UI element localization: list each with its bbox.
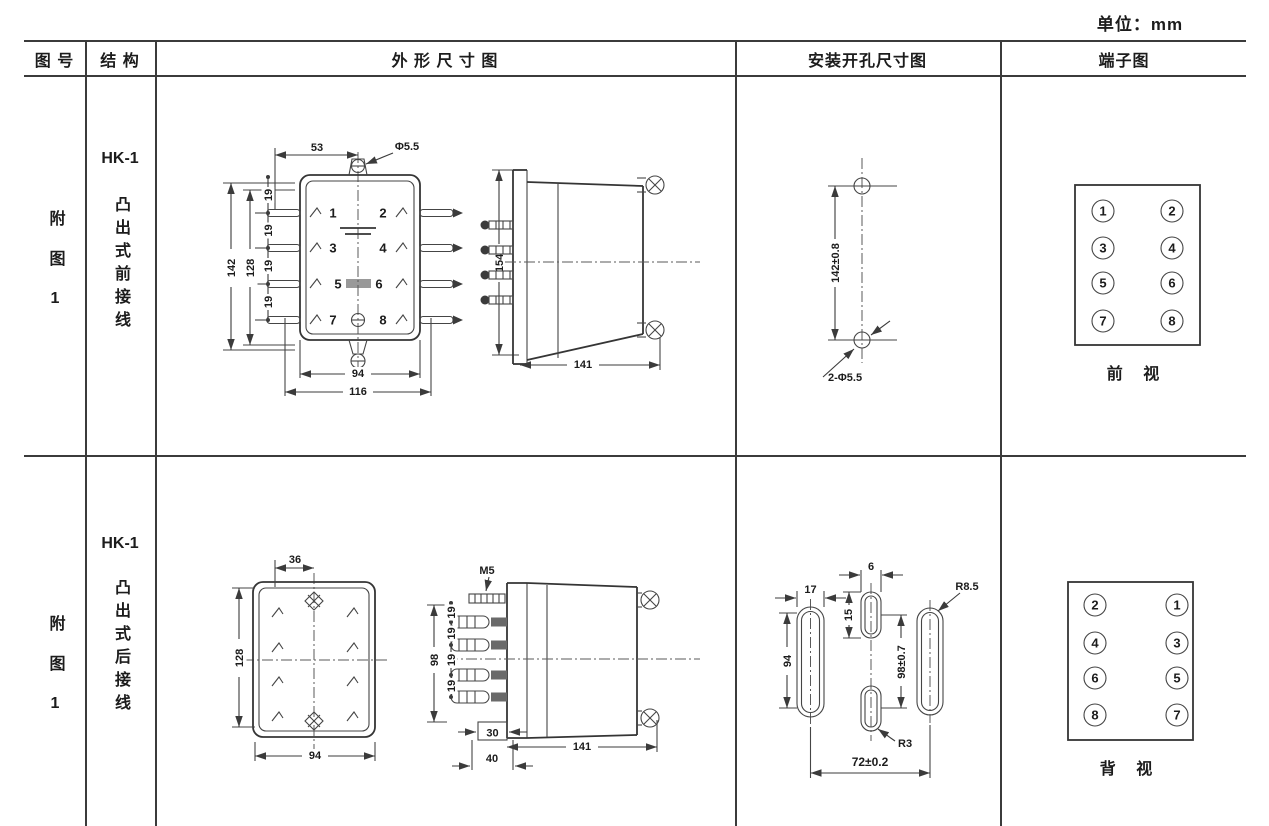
row2-mounting-drawing: 17 94 6 15 98±0.7 R8 [735,455,1000,826]
dim-label: 19 [263,296,275,308]
dim-label: 36 [289,554,301,566]
view-label: 前 视 [1107,364,1167,383]
terminal-number: 6 [1091,671,1098,686]
terminal-number: 1 [1099,204,1106,219]
terminal-number: 6 [1168,276,1175,291]
row2-structure-cell: HK-1 凸出式后接线 [87,455,153,826]
row2-outline-drawing: 36 128 94 M5 [155,455,735,826]
row2-model-label: HK-1 [101,535,138,553]
row2-front-view: 36 128 94 [232,554,388,762]
terminal-number: 6 [375,277,382,292]
row2-structure-label: 凸出式后接线 [108,579,132,717]
row2-terminal-drawing: 2 1 4 3 6 5 8 7 背 视 [1000,455,1269,826]
dim-label: 98 [429,654,441,666]
terminal-number: 8 [379,313,386,328]
header-terminal: 端子图 [1002,42,1246,75]
dim-label: 98±0.7 [896,645,908,679]
row2-mounting-cell: 17 94 6 15 98±0.7 R8 [735,455,1000,826]
row1-outline-cell: 1 2 3 4 5 6 7 8 53 Φ5.5 142 1 [155,78,735,455]
terminal-number: 1 [1173,598,1180,613]
dim-label: 19 [446,606,458,618]
terminal-number: 5 [1173,671,1180,686]
row1-front-view: 1 2 3 4 5 6 7 8 53 Φ5.5 142 1 [223,141,463,398]
terminal-number: 1 [329,206,336,221]
dim-label: 128 [245,259,257,277]
dim-label: 19 [263,224,275,236]
dim-label: M5 [479,565,494,577]
row1-terminal-cell: 1 2 3 4 5 6 7 8 前 视 [1000,78,1269,455]
row2-side-view: M5 98 [427,565,701,770]
dim-label: 128 [234,649,246,667]
dim-label: 19 [263,189,275,201]
dim-label: 72±0.2 [852,755,889,769]
terminal-number: 7 [329,313,336,328]
terminal-number: 7 [1099,314,1106,329]
dim-label: 141 [574,359,592,371]
dim-label: 30 [486,728,498,740]
view-label: 背 视 [1100,759,1160,778]
row1-figure-number: 附图1 [43,210,67,331]
row2-outline-cell: 36 128 94 M5 [155,455,735,826]
row1-mounting-drawing: 142±0.8 2-Φ5.5 [735,78,1000,455]
terminal-number: 3 [1099,241,1106,256]
row2-figure-cell: 附图1 [24,455,85,826]
terminal-number: 4 [1091,636,1099,651]
row1-figure-cell: 附图1 [24,78,85,455]
terminal-number: 5 [334,277,341,292]
terminal-number: 2 [1168,204,1175,219]
table-line-header-bottom [24,75,1246,77]
terminal-number: 8 [1168,314,1175,329]
terminal-number: 4 [1168,241,1176,256]
dim-label: 19 [263,260,275,272]
row1-terminal-drawing: 1 2 3 4 5 6 7 8 前 视 [1000,78,1269,455]
dim-label: 142±0.8 [830,243,842,283]
dim-label: 53 [311,142,323,154]
row1-structure-label: 凸出式前接线 [108,196,132,334]
terminal-number: 5 [1099,276,1106,291]
header-outline: 外 形 尺 寸 图 [157,42,733,75]
row1-outline-drawing: 1 2 3 4 5 6 7 8 53 Φ5.5 142 1 [155,78,735,455]
dim-label: 15 [843,609,855,621]
dim-label: 141 [573,741,591,753]
header-figure: 图 号 [24,42,85,75]
unit-label: 单位：mm [1060,10,1220,35]
dim-label: 2-Φ5.5 [828,372,862,384]
dim-label: 6 [868,561,874,573]
dim-label: 94 [782,654,794,667]
row1-structure-cell: HK-1 凸出式前接线 [87,78,153,455]
terminal-number: 8 [1091,708,1098,723]
dim-label: 19 [446,627,458,639]
dim-label: 40 [486,753,498,765]
header-mounting: 安装开孔尺寸图 [737,42,998,75]
dim-label: 19 [446,654,458,666]
header-structure: 结 构 [87,42,153,75]
dim-label: 154 [494,253,506,272]
terminal-number: 7 [1173,708,1180,723]
row1-mounting-cell: 142±0.8 2-Φ5.5 [735,78,1000,455]
spec-sheet-page: 单位：mm 图 号 结 构 外 形 尺 寸 图 安装开孔尺寸图 端子图 附图1 … [0,0,1269,826]
terminal-number: 4 [379,241,387,256]
dim-label: R3 [898,738,912,750]
dim-label: 142 [226,259,238,277]
dim-label: R8.5 [955,581,978,593]
dim-label: 94 [352,368,365,380]
dim-label: 19 [446,680,458,692]
dim-label: 94 [309,750,322,762]
terminal-number: 2 [379,206,386,221]
row2-terminal-cell: 2 1 4 3 6 5 8 7 背 视 [1000,455,1269,826]
terminal-number: 2 [1091,598,1098,613]
dim-label: 116 [349,386,367,398]
dim-label: 17 [804,584,816,596]
row2-figure-number: 附图1 [43,615,67,736]
row1-model-label: HK-1 [101,150,138,168]
terminal-number: 3 [1173,636,1180,651]
row1-side-view: 154 141 [481,170,701,371]
terminal-number: 3 [329,241,336,256]
dim-label: Φ5.5 [395,141,419,153]
